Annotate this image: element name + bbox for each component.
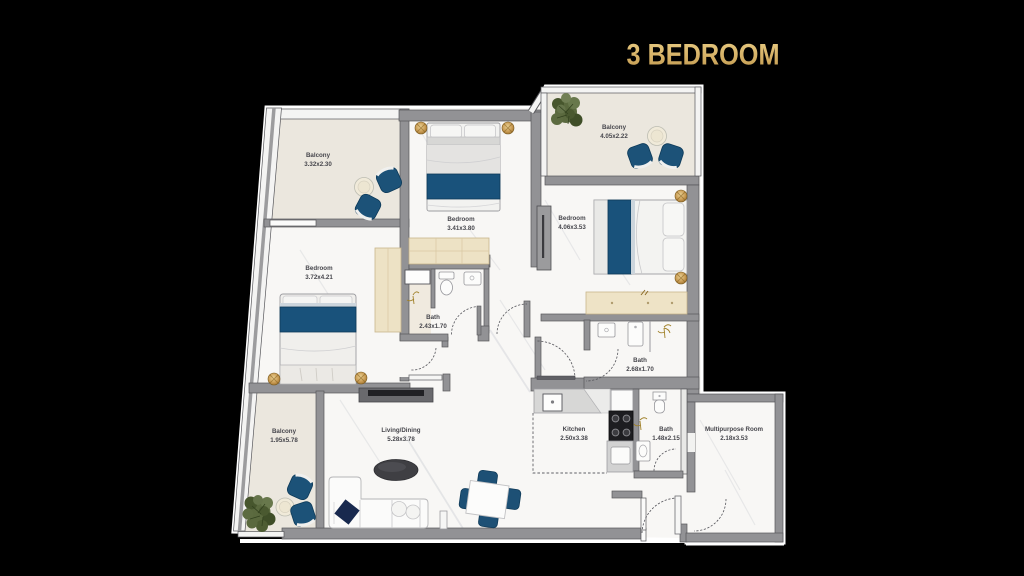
svg-text:5.28x3.78: 5.28x3.78 bbox=[387, 436, 415, 443]
svg-text:4.06x3.53: 4.06x3.53 bbox=[558, 224, 586, 231]
svg-text:2.43x1.70: 2.43x1.70 bbox=[419, 323, 447, 330]
svg-text:3.41x3.80: 3.41x3.80 bbox=[447, 225, 475, 232]
svg-text:2.18x3.53: 2.18x3.53 bbox=[720, 435, 748, 442]
svg-text:Balcony: Balcony bbox=[272, 428, 297, 435]
svg-text:1.48x2.15: 1.48x2.15 bbox=[652, 435, 680, 442]
svg-text:Kitchen: Kitchen bbox=[563, 426, 586, 433]
svg-text:Balcony: Balcony bbox=[306, 152, 331, 159]
svg-text:Bedroom: Bedroom bbox=[305, 265, 333, 272]
svg-text:3.72x4.21: 3.72x4.21 bbox=[305, 274, 333, 281]
svg-text:1.95x5.78: 1.95x5.78 bbox=[270, 437, 298, 444]
svg-text:Multipurpose Room: Multipurpose Room bbox=[705, 426, 764, 433]
svg-text:2.68x1.70: 2.68x1.70 bbox=[626, 366, 654, 373]
svg-text:4.05x2.22: 4.05x2.22 bbox=[600, 133, 628, 140]
svg-text:Bath: Bath bbox=[633, 357, 647, 364]
svg-text:3.32x2.30: 3.32x2.30 bbox=[304, 161, 332, 168]
svg-text:Balcony: Balcony bbox=[602, 124, 627, 131]
svg-text:Living/Dining: Living/Dining bbox=[381, 427, 420, 434]
svg-text:3 BEDROOM: 3 BEDROOM bbox=[627, 39, 780, 72]
svg-text:Bath: Bath bbox=[426, 314, 440, 321]
svg-text:Bedroom: Bedroom bbox=[447, 216, 475, 223]
svg-text:Bedroom: Bedroom bbox=[558, 215, 586, 222]
svg-text:2.50x3.38: 2.50x3.38 bbox=[560, 435, 588, 442]
svg-text:Bath: Bath bbox=[659, 426, 673, 433]
